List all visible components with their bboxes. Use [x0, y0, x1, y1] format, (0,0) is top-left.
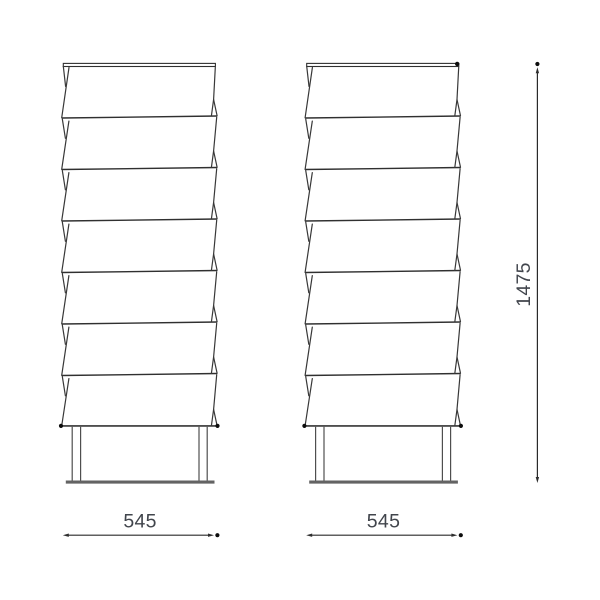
svg-text:545: 545	[123, 511, 156, 533]
svg-text:1475: 1475	[513, 262, 535, 307]
svg-text:545: 545	[367, 511, 400, 533]
